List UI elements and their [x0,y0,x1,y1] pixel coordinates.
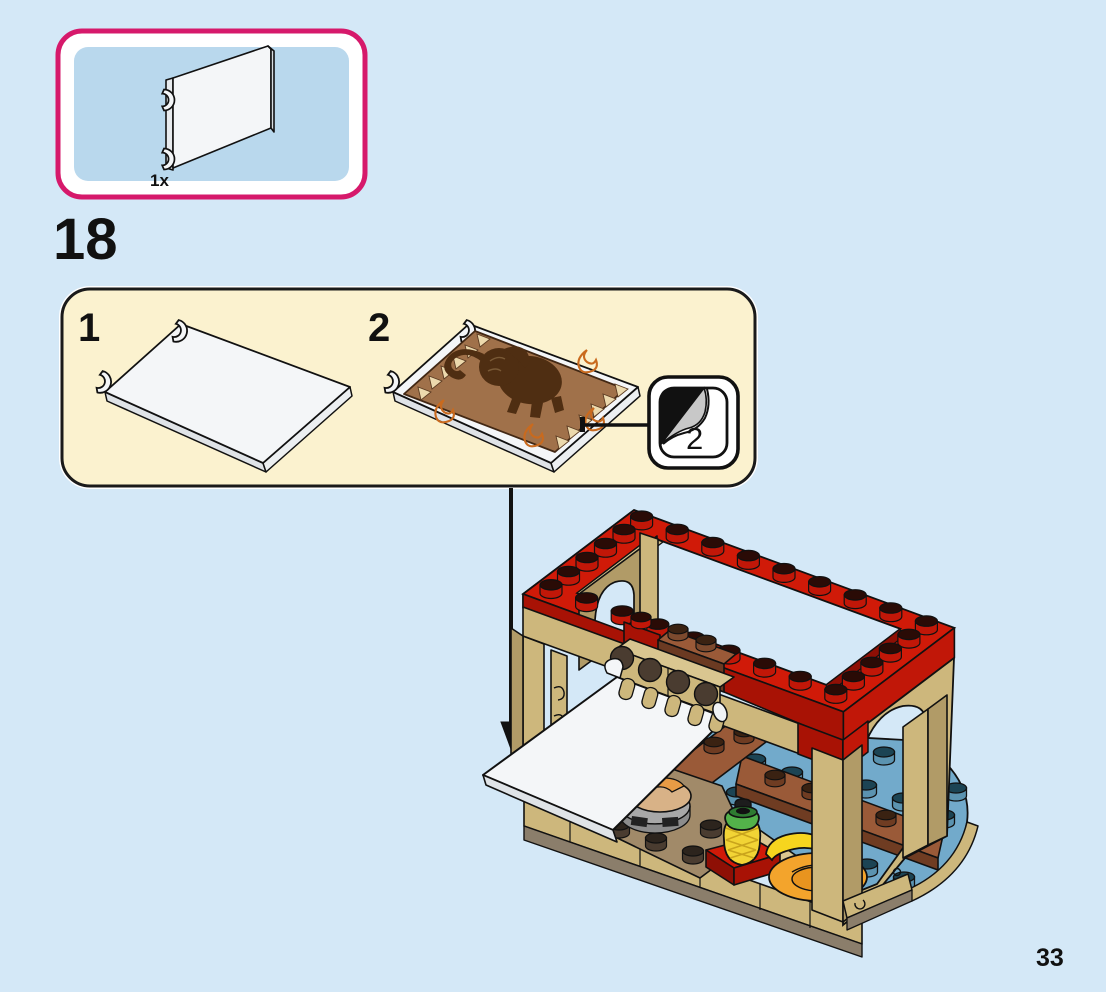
svg-text:2: 2 [686,421,703,456]
svg-text:1: 1 [78,306,100,350]
svg-text:1x: 1x [150,171,169,190]
svg-text:33: 33 [1036,944,1064,972]
svg-text:2: 2 [368,306,390,350]
svg-text:18: 18 [53,207,118,272]
